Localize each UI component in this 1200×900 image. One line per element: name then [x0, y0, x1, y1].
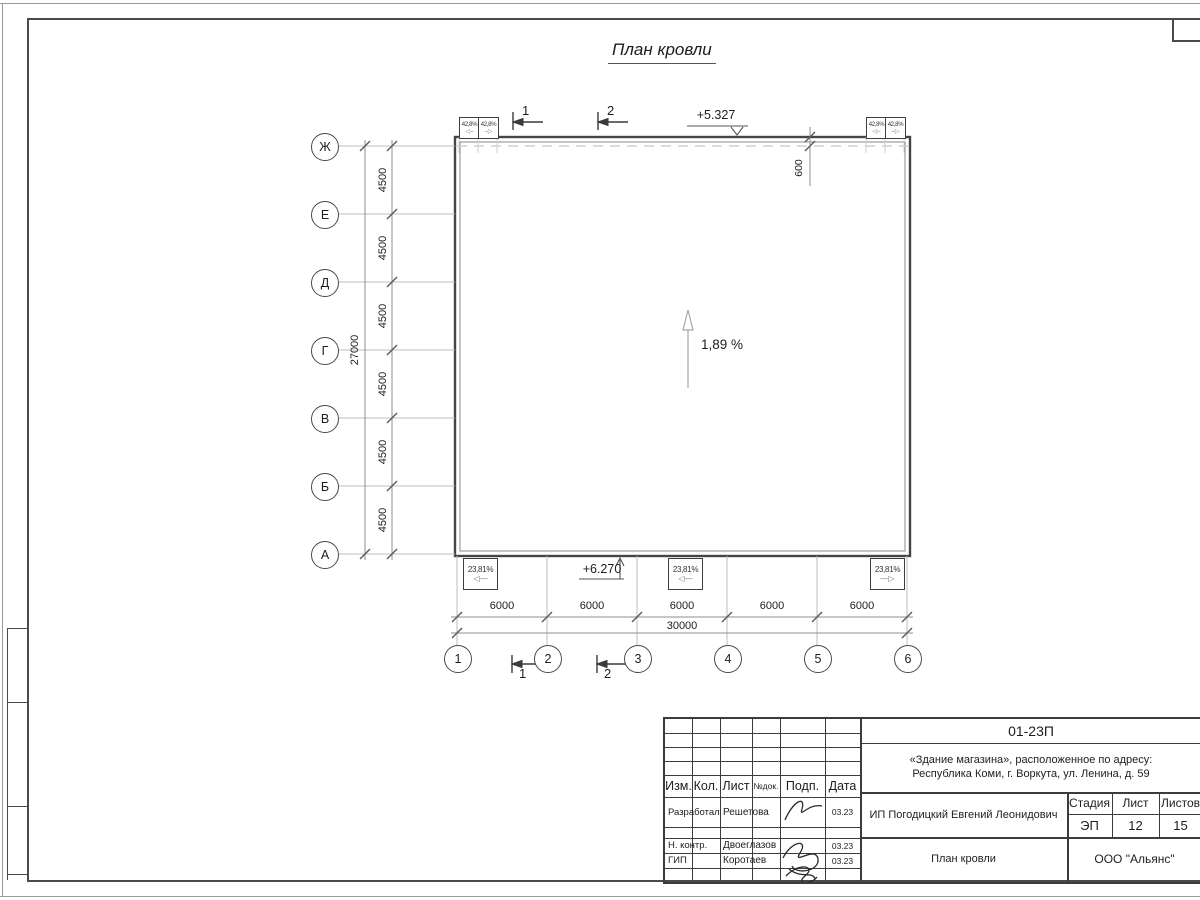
roof-funnel-bottom-2: 23,81%—▷ [870, 558, 905, 590]
roof-funnel-bottom-1: 23,81%◁— [668, 558, 703, 590]
axis-circle-col-5: 5 [804, 645, 832, 673]
axis-circle-col-3: 3 [624, 645, 652, 673]
col-dim-1: 6000 [567, 600, 617, 612]
axis-circle-col-4: 4 [714, 645, 742, 673]
axis-circle-row-Ж: Ж [311, 133, 339, 161]
drawing-sheet: План кровли +5.327 +6.270 1,89 % 600 270… [0, 0, 1200, 900]
funnel-slope-label: 42,8% [481, 122, 497, 128]
section-mark-bottom-1: 1 [519, 666, 526, 681]
row-dim-4: 4500 [377, 432, 389, 472]
signatures [665, 719, 1200, 882]
roof-funnel-top-2: 42,8%◁– [866, 117, 887, 139]
row-dim-2: 4500 [377, 296, 389, 336]
row-dim-1: 4500 [377, 228, 389, 268]
row-dim-5: 4500 [377, 500, 389, 540]
funnel-slope-label: 42,8% [869, 122, 885, 128]
flow-arrow-icon: –▷ [892, 129, 900, 135]
flow-arrow-icon: —▷ [880, 575, 894, 583]
axis-circle-col-2: 2 [534, 645, 562, 673]
row-dim-0: 4500 [377, 160, 389, 200]
roof-funnel-top-0: 42,8%◁– [459, 117, 480, 139]
funnel-slope-label: 23,81% [468, 566, 493, 574]
flow-arrow-icon: ◁– [466, 129, 474, 135]
col-dim-3: 6000 [747, 600, 797, 612]
row-dim-3: 4500 [377, 364, 389, 404]
axis-circle-row-Д: Д [311, 269, 339, 297]
title-block: 01-23П «Здание магазина», расположенное … [663, 717, 1200, 884]
elevation-top-label: +5.327 [688, 108, 744, 122]
axis-circle-row-В: В [311, 405, 339, 433]
axis-circle-row-А: А [311, 541, 339, 569]
col-dim-2: 6000 [657, 600, 707, 612]
axis-circle-row-Е: Е [311, 201, 339, 229]
roof-funnel-bottom-0: 23,81%◁— [463, 558, 498, 590]
elevation-bottom-label: +6.270 [579, 562, 625, 576]
flow-arrow-icon: ◁— [678, 575, 692, 583]
funnel-slope-label: 23,81% [875, 566, 900, 574]
roof-funnel-top-3: 42,8%–▷ [885, 117, 906, 139]
axis-circle-row-Г: Г [311, 337, 339, 365]
funnel-slope-label: 42,8% [462, 122, 478, 128]
section-mark-top-1: 1 [522, 103, 529, 118]
funnel-slope-label: 23,81% [673, 566, 698, 574]
axis-circle-col-6: 6 [894, 645, 922, 673]
flow-arrow-icon: ◁— [473, 575, 487, 583]
col-total-dim: 30000 [652, 620, 712, 632]
flow-arrow-icon: –▷ [485, 129, 493, 135]
axis-circle-col-1: 1 [444, 645, 472, 673]
flow-arrow-icon: ◁– [873, 129, 881, 135]
funnel-slope-label: 42,8% [888, 122, 904, 128]
section-mark-top-2: 2 [607, 103, 614, 118]
col-dim-0: 6000 [477, 600, 527, 612]
section-mark-bottom-2: 2 [604, 666, 611, 681]
col-dim-4: 6000 [837, 600, 887, 612]
row-total-dim: 27000 [349, 328, 361, 372]
slope-label: 1,89 % [701, 337, 743, 352]
roof-funnel-top-1: 42,8%–▷ [478, 117, 499, 139]
parapet-offset-label: 600 [793, 153, 805, 183]
axis-circle-row-Б: Б [311, 473, 339, 501]
